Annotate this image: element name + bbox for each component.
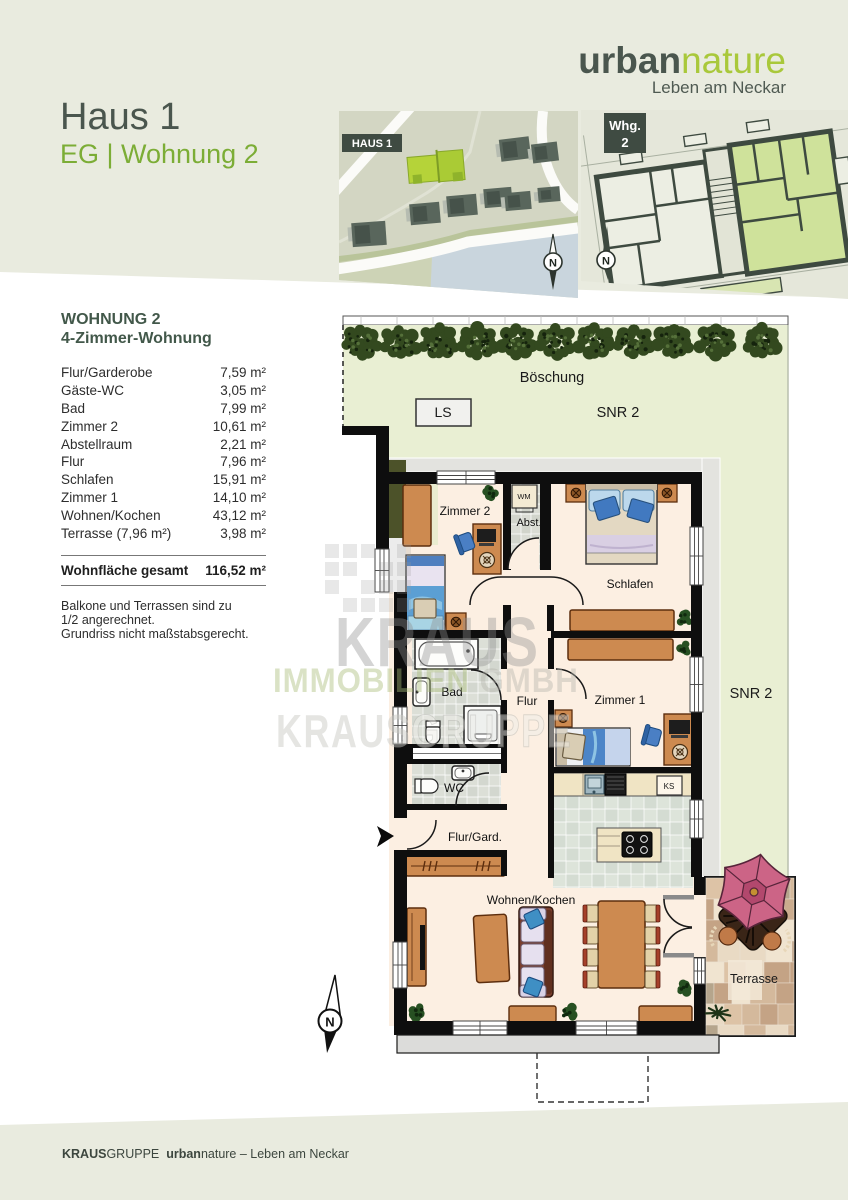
svg-text:N: N [549, 258, 557, 270]
svg-text:Böschung: Böschung [520, 370, 585, 386]
svg-text:Wohnen/Kochen: Wohnen/Kochen [487, 893, 576, 907]
svg-text:WM: WM [517, 492, 530, 501]
svg-text:N: N [602, 256, 610, 268]
svg-text:KS: KS [664, 782, 675, 791]
svg-text:Terrasse: Terrasse [730, 972, 778, 986]
svg-text:2: 2 [621, 135, 628, 150]
svg-text:Zimmer 1: Zimmer 1 [595, 693, 646, 707]
svg-text:N: N [325, 1015, 334, 1030]
svg-text:LS: LS [434, 404, 451, 420]
svg-text:HAUS 1: HAUS 1 [352, 138, 392, 150]
svg-text:WC: WC [444, 781, 464, 795]
svg-text:Whg.: Whg. [609, 118, 641, 133]
svg-text:Flur/Gard.: Flur/Gard. [448, 830, 502, 844]
svg-text:Zimmer 2: Zimmer 2 [440, 504, 491, 518]
svg-text:Abst.: Abst. [516, 517, 541, 529]
svg-text:SNR 2: SNR 2 [597, 405, 640, 421]
svg-text:SNR 2: SNR 2 [730, 686, 773, 702]
svg-text:Schlafen: Schlafen [607, 577, 654, 591]
